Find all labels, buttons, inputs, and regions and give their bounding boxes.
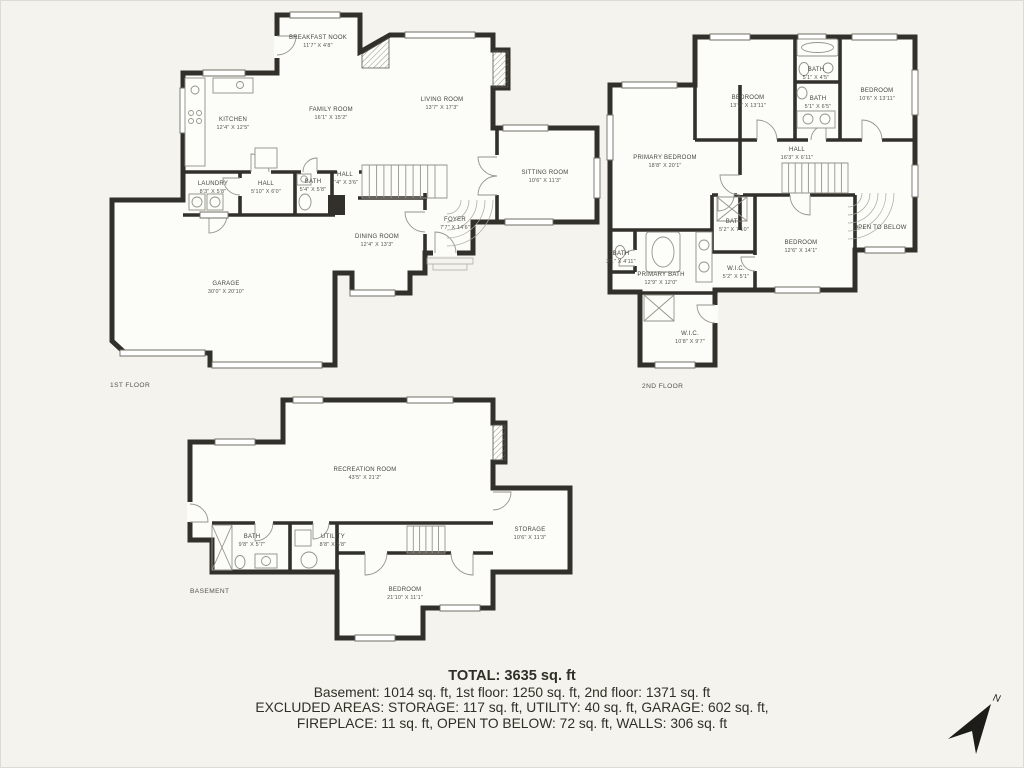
room-dims-bedroom-right: 10'6" X 13'11" — [859, 96, 895, 102]
area-summary: TOTAL: 3635 sq. ft Basement: 1014 sq. ft… — [0, 669, 1024, 731]
room-dims-bath-mid: 5'1" X 6'5" — [805, 104, 832, 110]
room-dims-basement-bedroom: 21'10" X 11'1" — [387, 595, 423, 601]
compass-north-label: N — [992, 693, 1002, 706]
room-label-recreation: RECREATION ROOM — [334, 467, 397, 473]
basement-chimney-hatch — [493, 425, 505, 460]
room-dims-foyer: 7'7" X 14'6" — [440, 225, 470, 231]
room-label-sitting-room: SITTING ROOM — [522, 170, 569, 176]
chimney-hatch — [493, 51, 508, 87]
basement-bath-fixtures — [235, 554, 277, 569]
room-dims-basement-bath: 9'8" X 5'7" — [239, 542, 266, 548]
room-label-basement-bedroom: BEDROOM — [389, 587, 422, 593]
room-dims-laundry: 8'3" X 5'8" — [200, 189, 227, 195]
basement-area — [190, 400, 570, 638]
basement-caption: BASEMENT — [190, 588, 229, 595]
room-label-hall1: HALL — [258, 181, 274, 187]
room-dims-hall1: 5'10" X 6'0" — [251, 189, 281, 195]
compass: N — [935, 688, 1020, 766]
room-label-primary-bath: PRIMARY BATH — [637, 272, 684, 278]
room-label-bath-52: BATH — [726, 219, 743, 225]
first-floor-plan: BREAKFAST NOOK 11'7" X 4'8" KITCHEN 12'4… — [105, 8, 605, 393]
room-label-garage: GARAGE — [212, 281, 239, 287]
room-dims-recreation: 43'5" X 21'2" — [348, 475, 381, 481]
room-dims-storage: 10'6" X 11'3" — [514, 535, 547, 541]
basement-plan: RECREATION ROOM 43'5" X 21'2" BATH 9'8" … — [185, 390, 750, 655]
room-dims-family-room: 16'1" X 15'2" — [314, 115, 347, 121]
room-dims-primary-bath: 12'9" X 12'0" — [644, 280, 677, 286]
room-label-utility: UTILITY — [321, 534, 345, 540]
excluded-areas-1: EXCLUDED AREAS: STORAGE: 117 sq. ft, UTI… — [0, 700, 1024, 716]
room-dims-living-room: 13'7" X 17'3" — [425, 105, 458, 111]
excluded-areas-2: FIREPLACE: 11 sq. ft, OPEN TO BELOW: 72 … — [0, 716, 1024, 732]
room-dims-garage: 30'0" X 20'10" — [208, 289, 244, 295]
second-floor-plan: BEDROOM 13'9" X 13'11" BATH 5'1" X 4'5" … — [600, 25, 930, 395]
room-dims-breakfast-nook: 11'7" X 4'8" — [303, 43, 332, 49]
room-label-hall-second: HALL — [789, 147, 805, 153]
room-label-bath-top: BATH — [808, 67, 825, 73]
chase-wall — [328, 195, 345, 215]
room-label-bath-small: BATH — [613, 251, 630, 257]
room-label-primary-bedroom: PRIMARY BEDROOM — [633, 155, 697, 161]
room-label-dining-room: DINING ROOM — [355, 234, 399, 240]
room-dims-hall2: 7'4" X 3'6" — [332, 180, 359, 186]
second-floor-caption: 2ND FLOOR — [642, 383, 683, 390]
front-porch-steps — [427, 258, 473, 270]
first-floor-caption: 1ST FLOOR — [110, 382, 150, 389]
room-label-storage: STORAGE — [515, 527, 546, 533]
room-dims-primary-bedroom: 18'8" X 20'1" — [648, 163, 681, 169]
room-label-laundry: LAUNDRY — [198, 181, 228, 187]
room-dims-bath-top: 5'1" X 4'5" — [803, 75, 830, 81]
room-label-bedroom-br: BEDROOM — [785, 240, 818, 246]
room-dims-bedroom-left: 13'9" X 13'11" — [730, 103, 766, 109]
room-label-basement-bath: BATH — [244, 534, 261, 540]
total-area: TOTAL: 3635 sq. ft — [0, 669, 1024, 685]
room-label-family-room: FAMILY ROOM — [309, 107, 353, 113]
room-label-bath1: BATH — [305, 179, 322, 185]
room-dims-bath-52: 5'2" X 7'10" — [719, 227, 749, 233]
room-label-wic-small: W.I.C. — [727, 266, 745, 272]
room-dims-utility: 8'8" X 5'8" — [320, 542, 347, 548]
room-dims-sitting-room: 10'6" X 11'3" — [529, 178, 562, 184]
room-label-breakfast-nook: BREAKFAST NOOK — [289, 35, 347, 41]
room-label-wic-large: W.I.C. — [681, 331, 699, 337]
room-label-kitchen: KITCHEN — [219, 117, 247, 123]
room-dims-bath1: 5'4" X 5'8" — [300, 187, 327, 193]
room-label-living-room: LIVING ROOM — [421, 97, 464, 103]
room-dims-kitchen: 12'4" X 12'5" — [216, 125, 249, 131]
room-label-foyer: FOYER — [444, 217, 466, 223]
room-label-open-to-below: OPEN TO BELOW — [853, 225, 906, 231]
room-dims-wic-small: 5'2" X 5'1" — [723, 274, 750, 280]
room-label-bedroom-right: BEDROOM — [861, 88, 894, 94]
room-label-bedroom-left: BEDROOM — [732, 95, 765, 101]
floor-areas: Basement: 1014 sq. ft, 1st floor: 1250 s… — [0, 685, 1024, 701]
room-dims-hall-second: 16'3" X 6'11" — [781, 155, 814, 161]
room-dims-dining-room: 12'4" X 13'3" — [360, 242, 393, 248]
room-dims-wic-large: 10'8" X 9'7" — [675, 339, 705, 345]
room-dims-bedroom-br: 12'6" X 14'1" — [784, 248, 817, 254]
north-arrow-icon — [948, 704, 991, 754]
room-label-hall2: HALL — [337, 172, 353, 178]
room-label-bath-mid: BATH — [810, 96, 827, 102]
room-dims-bath-small: 3'1" X 4'11" — [606, 259, 635, 265]
